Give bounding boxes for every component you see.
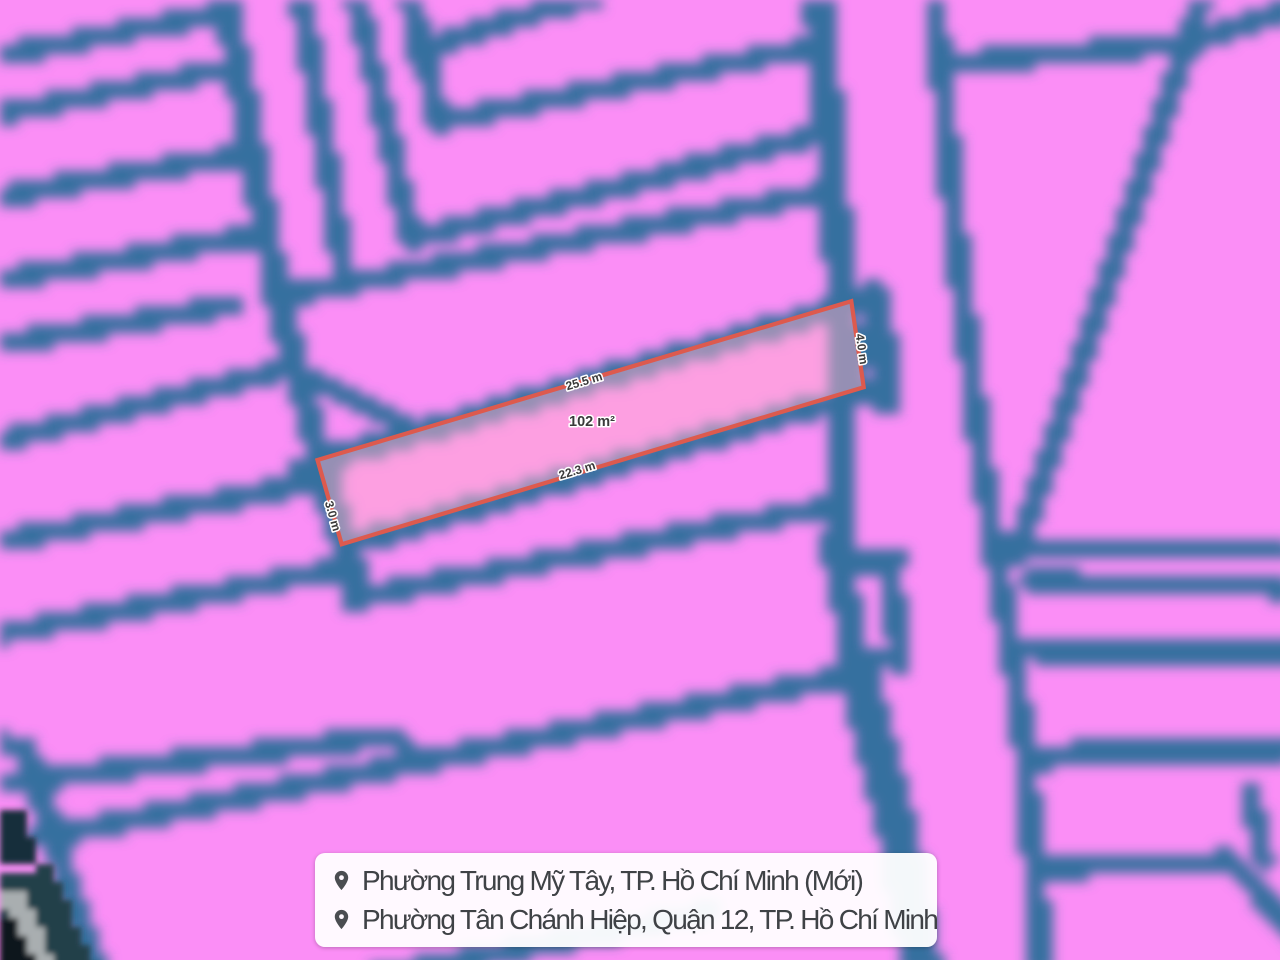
svg-text:102 m²: 102 m² xyxy=(569,414,615,430)
